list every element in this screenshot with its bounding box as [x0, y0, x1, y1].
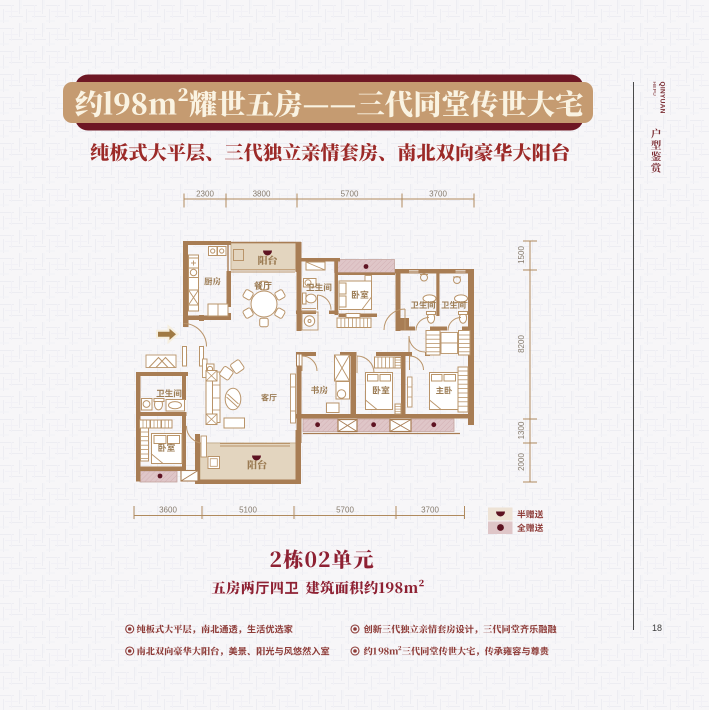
- svg-text:18: 18: [652, 623, 662, 633]
- svg-text:3800: 3800: [253, 190, 271, 199]
- svg-text:HEPU: HEPU: [651, 82, 657, 97]
- svg-text:QINYUAN: QINYUAN: [659, 82, 666, 114]
- svg-text:1300: 1300: [517, 421, 526, 439]
- svg-text:5700: 5700: [336, 506, 354, 515]
- svg-text:8200: 8200: [517, 335, 526, 353]
- svg-text:2300: 2300: [196, 190, 214, 199]
- svg-text:3600: 3600: [159, 506, 177, 515]
- svg-text:2000: 2000: [517, 453, 526, 471]
- svg-text:5100: 5100: [239, 506, 257, 515]
- svg-text:1500: 1500: [517, 246, 526, 264]
- svg-text:3700: 3700: [429, 190, 447, 199]
- svg-text:5700: 5700: [341, 190, 359, 199]
- svg-text:3700: 3700: [421, 506, 439, 515]
